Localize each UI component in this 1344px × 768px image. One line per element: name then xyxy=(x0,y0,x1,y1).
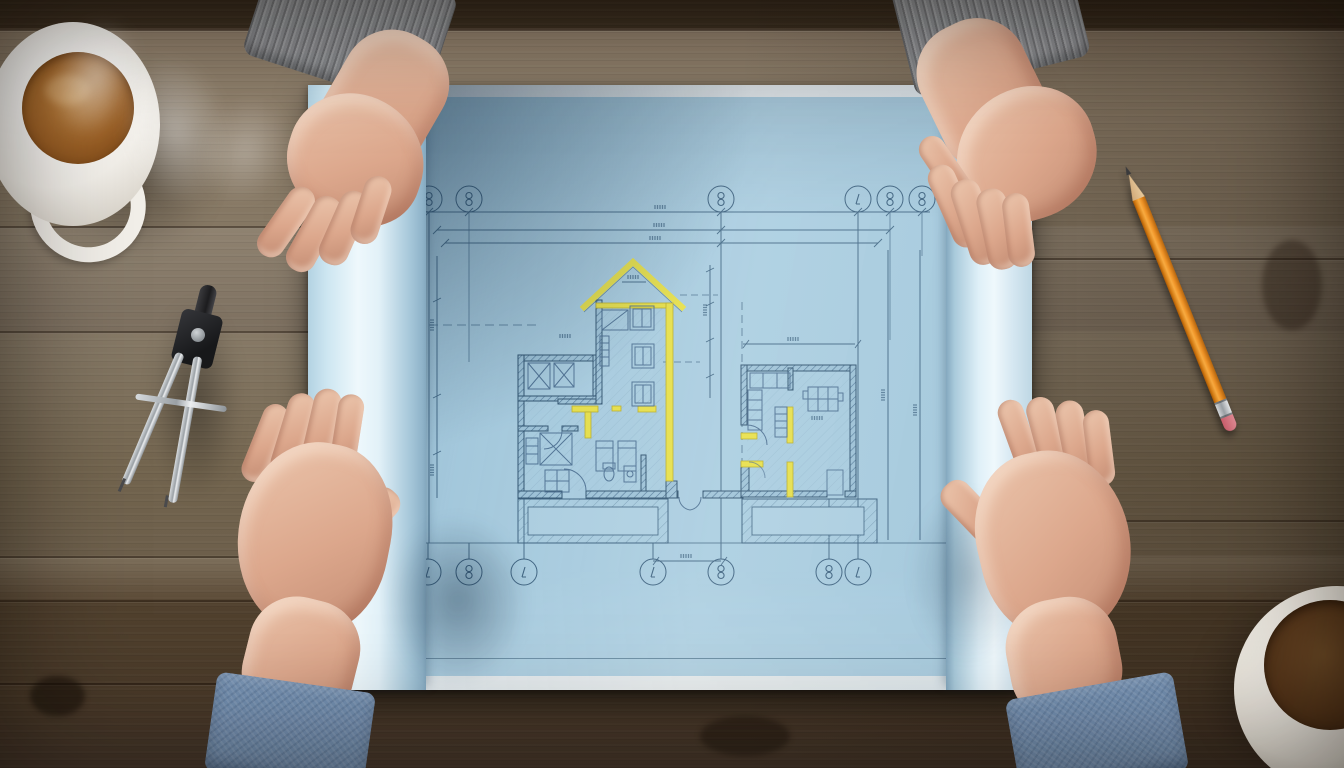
wood-knot xyxy=(700,716,790,756)
pencil-graphite-tip xyxy=(1123,165,1131,175)
wood-knot xyxy=(30,676,85,716)
photo-scene xyxy=(0,0,1344,768)
hand-shadow xyxy=(388,515,528,685)
plank-seam xyxy=(0,29,1344,31)
compass-crossbar xyxy=(135,394,227,413)
wood-knot xyxy=(1262,240,1322,330)
